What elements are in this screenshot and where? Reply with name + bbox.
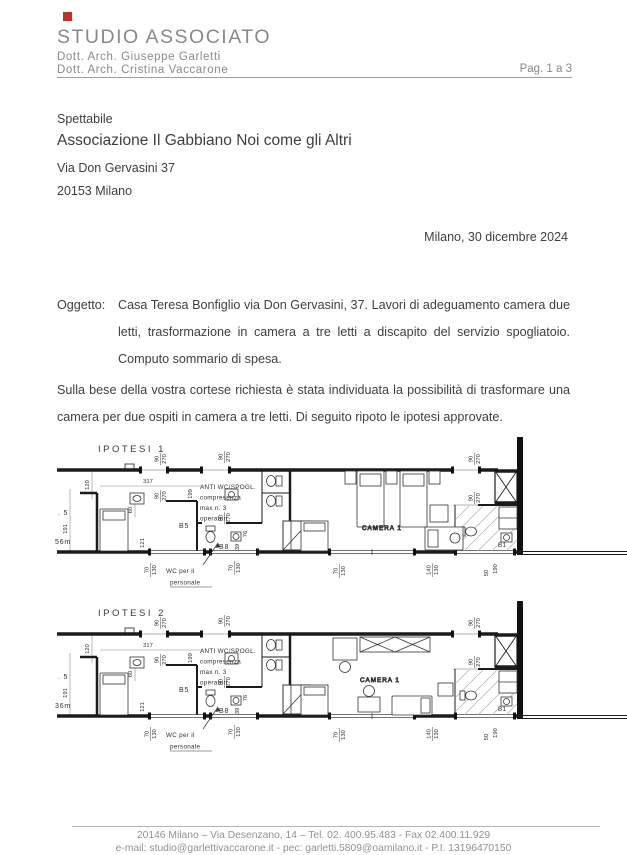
fixtures bbox=[100, 640, 517, 716]
salutation: Spettabile bbox=[57, 112, 113, 126]
label-camera: CAMERA 1 bbox=[360, 677, 400, 684]
dateline: Milano, 30 dicembre 2024 bbox=[300, 230, 568, 244]
svg-text:120: 120 bbox=[85, 480, 91, 490]
architect-1: Dott. Arch. Giuseppe Garletti bbox=[57, 51, 221, 63]
label-anti-wc-3: max n. 3 bbox=[200, 505, 227, 512]
svg-text:90: 90 bbox=[155, 657, 161, 663]
label-anti-wc-2: compresenza bbox=[200, 495, 241, 502]
label-edge-2: 56m bbox=[55, 539, 71, 546]
label-wc-personale: WC per il bbox=[166, 568, 195, 575]
svg-text:140: 140 bbox=[427, 729, 433, 739]
label-edge-2: 36m bbox=[55, 703, 71, 710]
svg-text:270: 270 bbox=[476, 493, 482, 503]
svg-text:50: 50 bbox=[484, 570, 490, 576]
label-room-b1: B1 bbox=[498, 542, 506, 549]
svg-text:70: 70 bbox=[145, 567, 151, 573]
svg-text:130: 130 bbox=[236, 727, 242, 737]
svg-text:199: 199 bbox=[188, 653, 194, 663]
label-anti-wc: ANTI WC/SPOGL. bbox=[200, 484, 256, 491]
svg-text:90: 90 bbox=[469, 456, 475, 462]
svg-text:270: 270 bbox=[162, 454, 168, 464]
svg-text:270: 270 bbox=[226, 677, 232, 687]
svg-text:60: 60 bbox=[128, 671, 134, 677]
recipient-name: Associazione Il Gabbiano Noi come gli Al… bbox=[57, 132, 352, 150]
svg-text:90: 90 bbox=[155, 493, 161, 499]
svg-text:39: 39 bbox=[235, 708, 241, 714]
svg-text:70: 70 bbox=[334, 732, 340, 738]
logo-mark bbox=[63, 12, 72, 21]
recipient-city: 20153 Milano bbox=[57, 184, 132, 198]
subject-block: Oggetto: Casa Teresa Bonfiglio via Don G… bbox=[57, 292, 570, 373]
footer-contacts: e-mail: studio@garlettivaccarone.it - pe… bbox=[0, 843, 627, 854]
svg-text:317: 317 bbox=[143, 643, 153, 649]
label-room-b8: B8 bbox=[219, 544, 229, 551]
body-paragraph: Sulla bese della vostra cortese richiest… bbox=[57, 377, 570, 431]
svg-text:120: 120 bbox=[85, 644, 91, 654]
svg-text:90: 90 bbox=[219, 515, 225, 521]
label-room-b8: B8 bbox=[219, 708, 229, 715]
windows bbox=[148, 713, 516, 720]
svg-text:199: 199 bbox=[188, 489, 194, 499]
svg-text:121: 121 bbox=[140, 702, 146, 712]
svg-text:130: 130 bbox=[152, 565, 158, 575]
svg-text:317: 317 bbox=[143, 479, 153, 485]
label-camera: CAMERA 1 bbox=[362, 525, 402, 532]
svg-text:191: 191 bbox=[63, 688, 69, 698]
svg-text:191: 191 bbox=[63, 524, 69, 534]
svg-text:130: 130 bbox=[434, 729, 440, 739]
plan-title: IPOTESI 1 bbox=[98, 444, 166, 455]
label-wc-personale: WC per il bbox=[166, 732, 195, 739]
label-edge-1: . 5 bbox=[58, 674, 68, 681]
svg-text:70: 70 bbox=[229, 565, 235, 571]
svg-text:190: 190 bbox=[493, 728, 499, 738]
footer-address: 20146 Milano – Via Desenzano, 14 – Tel. … bbox=[0, 830, 627, 841]
label-anti-wc-3: max n. 3 bbox=[200, 669, 227, 676]
svg-text:90: 90 bbox=[469, 659, 475, 665]
label-edge-1: . 5 bbox=[58, 510, 68, 517]
label-wc-personale-2: personale bbox=[170, 580, 201, 587]
svg-text:90: 90 bbox=[469, 620, 475, 626]
svg-text:130: 130 bbox=[152, 729, 158, 739]
architect-2: Dott. Arch. Cristina Vaccarone bbox=[57, 64, 228, 76]
svg-text:190: 190 bbox=[493, 564, 499, 574]
svg-text:90: 90 bbox=[155, 456, 161, 462]
subject-label: Oggetto: bbox=[57, 292, 118, 373]
svg-text:70: 70 bbox=[145, 731, 151, 737]
label-anti-wc: ANTI WC/SPOGL. bbox=[200, 648, 256, 655]
svg-text:90: 90 bbox=[219, 679, 225, 685]
svg-text:39: 39 bbox=[235, 544, 241, 550]
subject-text: Casa Teresa Bonfiglio via Don Gervasini,… bbox=[118, 292, 570, 373]
recipient-address: Via Don Gervasini 37 bbox=[57, 161, 175, 175]
label-anti-wc-2: compresenza bbox=[200, 659, 241, 666]
plan-title: IPOTESI 2 bbox=[98, 608, 166, 619]
svg-text:90: 90 bbox=[219, 618, 225, 624]
label-room-b5: B5 bbox=[179, 687, 189, 694]
svg-text:130: 130 bbox=[341, 730, 347, 740]
svg-text:76: 76 bbox=[243, 531, 249, 537]
floor-plan-ipotesi-1: IPOTESI 1 bbox=[40, 437, 627, 600]
svg-text:270: 270 bbox=[226, 452, 232, 462]
svg-text:270: 270 bbox=[476, 657, 482, 667]
floor-plan: IPOTESI 1 bbox=[40, 437, 627, 600]
svg-text:270: 270 bbox=[162, 618, 168, 628]
svg-text:76: 76 bbox=[243, 695, 249, 701]
svg-text:50: 50 bbox=[484, 734, 490, 740]
svg-text:130: 130 bbox=[434, 565, 440, 575]
svg-text:130: 130 bbox=[341, 566, 347, 576]
camera-furniture-two-beds: CAMERA 1 bbox=[345, 471, 463, 550]
svg-text:90: 90 bbox=[155, 620, 161, 626]
label-room-b5: B5 bbox=[179, 523, 189, 530]
label-room-b1: B1 bbox=[498, 706, 506, 713]
letter-page: { "header": { "logo_color": "#c62f26", "… bbox=[0, 0, 627, 855]
svg-text:270: 270 bbox=[162, 655, 168, 665]
studio-name: STUDIO ASSOCIATO bbox=[57, 26, 271, 49]
svg-text:140: 140 bbox=[427, 565, 433, 575]
svg-text:90: 90 bbox=[469, 495, 475, 501]
svg-text:270: 270 bbox=[476, 618, 482, 628]
page-indicator: Pag. 1 a 3 bbox=[470, 63, 572, 75]
svg-text:270: 270 bbox=[162, 491, 168, 501]
svg-text:270: 270 bbox=[226, 616, 232, 626]
label-wc-personale-2: personale bbox=[170, 744, 201, 751]
svg-text:130: 130 bbox=[236, 563, 242, 573]
floor-plan: IPOTESI 2 bbox=[40, 601, 627, 764]
svg-text:70: 70 bbox=[334, 568, 340, 574]
footer-rule bbox=[72, 826, 600, 827]
svg-text:121: 121 bbox=[140, 538, 146, 548]
svg-text:270: 270 bbox=[226, 513, 232, 523]
svg-text:270: 270 bbox=[476, 454, 482, 464]
header-rule bbox=[57, 77, 572, 78]
svg-text:90: 90 bbox=[219, 454, 225, 460]
floor-plan-ipotesi-2: IPOTESI 2 bbox=[40, 601, 627, 764]
svg-text:70: 70 bbox=[229, 729, 235, 735]
camera-furniture-wardrobe-beds: CAMERA 1 bbox=[333, 637, 453, 715]
svg-text:60: 60 bbox=[128, 507, 134, 513]
